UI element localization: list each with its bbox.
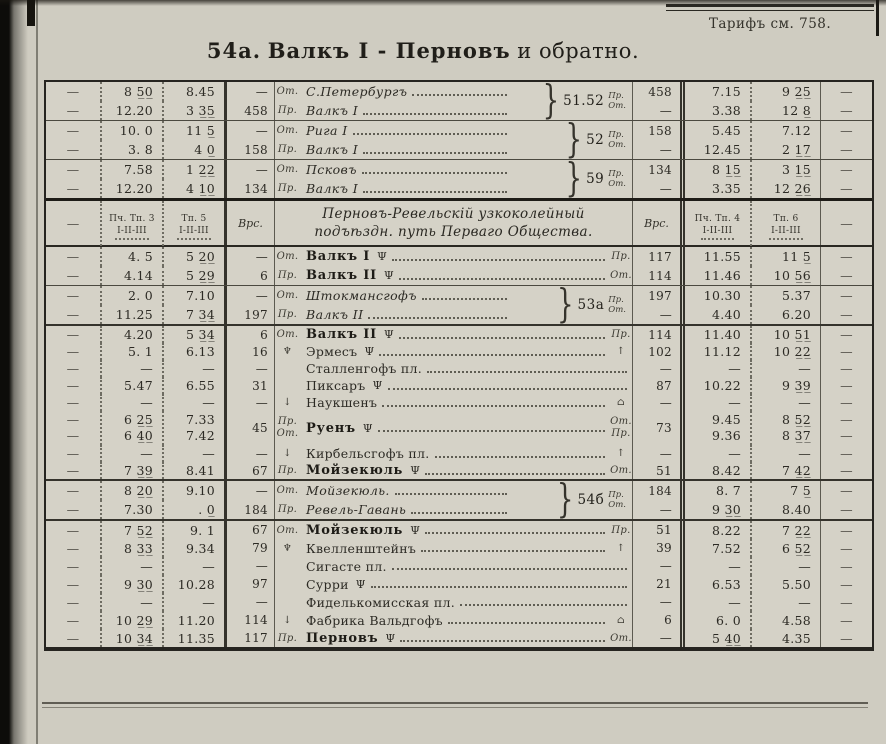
time-cell: 9. 1 [162, 521, 224, 539]
timetable-row: —4.145 2̲9̲6Пр.Валкъ IIΨОт.11411.4610 5̲… [46, 266, 872, 285]
timetable-row: ————Фиделькомисская пл.———— [46, 593, 872, 611]
time-cell: 12.20 [100, 101, 162, 120]
right-ink-mark [876, 0, 879, 36]
dash-cell: — [820, 611, 872, 629]
route-number-label: 54а. [207, 38, 261, 63]
buffet-icon: Ψ [385, 632, 395, 645]
direction-cell: ♆ [274, 539, 300, 557]
timetable-row: —2. 07.10—От.Штокмансгофъ19710.305.37— [46, 286, 872, 305]
verst-cell: — [632, 394, 680, 411]
verst-cell: — [224, 593, 274, 611]
timetable: —8 5̲0̲8.45—От.С.Петербургъ4587.159 2̲5̲… [44, 80, 874, 651]
row-group: —7 5̲2̲9. 167От.МойзекюльΨПр.518.227 2̲2… [46, 521, 872, 647]
verst-cell: 51 [632, 462, 680, 479]
verst-cell: 197 [224, 305, 274, 324]
station-cell: Сигасте пл. [300, 557, 632, 575]
time-cell: 11.55 [680, 247, 750, 266]
dash-cell: — [46, 481, 100, 500]
verst-cell: 158 [224, 140, 274, 159]
dash-cell: — [820, 266, 872, 285]
dash-cell: — [820, 121, 872, 140]
dotted-leader [399, 337, 605, 339]
dotted-leader [435, 456, 605, 458]
brace-glyph: } [566, 121, 583, 160]
dotted-leader [460, 604, 627, 606]
verst-cell: 458 [224, 101, 274, 120]
time-cell: 10. 0 [100, 121, 162, 140]
header-train-right-2: Тп. 6 І-ІІ-ІІІ [750, 201, 820, 249]
time-cell: 4.40 [680, 305, 750, 324]
direction-cell [274, 575, 300, 593]
dotted-leader [379, 354, 605, 356]
dash-cell: — [46, 305, 100, 324]
row-group: —2. 07.10—От.Штокмансгофъ19710.305.37——1… [46, 285, 872, 324]
time-cell: 11 5̲ [750, 247, 820, 266]
time-cell: 5 2̲9̲ [162, 266, 224, 285]
time-cell: 5.37 [750, 286, 820, 305]
time-cell: 10.30 [680, 286, 750, 305]
time-cell: 8. 7 [680, 481, 750, 500]
section-moiseküll-to-pernov: —7 5̲2̲9. 167От.МойзекюльΨПр.518.227 2̲2… [46, 519, 872, 647]
row-group: —8 2̲0̲9.10—От.Мойзекюль.1848. 77 5̲——7.… [46, 481, 872, 519]
direction-cell: Пр. [274, 101, 300, 120]
route-ref-directions: Пр.От. [608, 295, 626, 315]
route-ref-directions: Пр.От. [608, 490, 626, 510]
station-cell: СурриΨ [300, 575, 632, 593]
time-cell: 8.45 [162, 82, 224, 101]
dash-cell: — [46, 140, 100, 159]
row-group: —4.205 3̲4̲6От.Валкъ IIΨПр.11411.4010 5̲… [46, 326, 872, 479]
header-train-left-1: Пч. Тп. 3 І-ІІ-ІІІ [100, 201, 162, 249]
dash-cell: — [46, 445, 100, 462]
class-label: І-ІІ-ІІІ [769, 226, 803, 241]
dotted-leader [353, 133, 507, 135]
route-ref-directions: Пр.От. [608, 91, 626, 111]
section-connections-top: —8 5̲0̲8.45—От.С.Петербургъ4587.159 2̲5̲… [46, 82, 872, 198]
verst-cell: 184 [632, 481, 680, 500]
end-symbol: ↑ [610, 445, 632, 462]
dash-cell: — [820, 593, 872, 611]
dotted-leader [400, 640, 605, 642]
train-label: Тп. 5 [182, 214, 207, 226]
station-cell: Наукшенъ⌂ [300, 394, 632, 411]
time-cell: 7 3̲9̲ [100, 462, 162, 479]
verst-cell: — [632, 179, 680, 198]
direction-cell [274, 557, 300, 575]
verst-cell: 31 [224, 377, 274, 394]
buffet-icon: Ψ [410, 524, 420, 537]
time-cell: — [162, 593, 224, 611]
timetable-row: —10. 011 5̲—От.Рига I1585.457.12— [46, 121, 872, 140]
dash-cell: — [820, 481, 872, 500]
dash-cell: — [820, 377, 872, 394]
station-cell: МойзекюльΨПр. [300, 521, 632, 539]
dash-cell: — [820, 326, 872, 343]
verst-cell: — [224, 82, 274, 101]
verst-cell: — [632, 360, 680, 377]
verst-cell: 73 [632, 411, 680, 445]
end-symbol: ↑ [610, 539, 632, 557]
line-title-2: подъѣздн. путь Перваго Общества. [314, 223, 592, 241]
time-cell: — [680, 360, 750, 377]
timetable-row: —12.204 1̲0̲134Пр.Валкъ I—3.3512 2̲6̲— [46, 179, 872, 198]
verst-cell: 134 [224, 179, 274, 198]
dotted-leader [362, 172, 507, 174]
time-cell: 3. 8 [100, 140, 162, 159]
dotted-leader [371, 586, 627, 588]
dotted-leader [422, 298, 507, 300]
verst-cell: 97 [224, 575, 274, 593]
verst-cell: — [632, 500, 680, 519]
dotted-leader [388, 388, 627, 390]
dotted-leader [425, 473, 605, 475]
time-cell: 6.13 [162, 343, 224, 360]
row-group: —8 5̲0̲8.45—От.С.Петербургъ4587.159 2̲5̲… [46, 82, 872, 120]
time-cell: — [750, 557, 820, 575]
dotted-leader [382, 405, 605, 407]
dash-cell: — [46, 266, 100, 285]
station-name: Сурри [306, 577, 349, 592]
dash-cell: — [820, 394, 872, 411]
timetable-row: —11.257 3̲4̲197Пр.Валкъ II—4.406.20— [46, 305, 872, 324]
direction-cell: ♆ [274, 343, 300, 360]
direction-cell: От. [274, 286, 300, 305]
dash-cell: — [820, 160, 872, 179]
brace-glyph: } [566, 160, 583, 199]
route-ref-directions: Пр.От. [608, 130, 626, 150]
station-cell: Квелленштейнъ↑ [300, 539, 632, 557]
time-cell: 12 8̲ [750, 101, 820, 120]
station-name: Кирбельсгофъ пл. [306, 446, 430, 461]
time-cell: 8.41 [162, 462, 224, 479]
time-cell: 12.20 [100, 179, 162, 198]
verst-cell: — [224, 160, 274, 179]
time-cell: 9 2̲5̲ [750, 82, 820, 101]
timetable-row: —8 2̲0̲9.10—От.Мойзекюль.1848. 77 5̲— [46, 481, 872, 500]
time-cell: 6.55 [162, 377, 224, 394]
time-cell: 10 5̲6̲ [750, 266, 820, 285]
time-cell: — [100, 593, 162, 611]
verst-cell: — [224, 247, 274, 266]
time-cell: 7.10 [162, 286, 224, 305]
timetable-row: ————↓Наукшенъ⌂———— [46, 394, 872, 411]
dash-cell: — [820, 82, 872, 101]
dash-cell: — [46, 539, 100, 557]
verst-cell: — [224, 286, 274, 305]
dash-cell: — [820, 360, 872, 377]
time-cell: 11.46 [680, 266, 750, 285]
timetable-row: —8 5̲0̲8.45—От.С.Петербургъ4587.159 2̲5̲… [46, 82, 872, 101]
dash-cell: — [46, 179, 100, 198]
time-cell: 3.35 [680, 179, 750, 198]
direction-cell: Пр.От. [274, 411, 300, 445]
timetable-row: —7 5̲2̲9. 167От.МойзекюльΨПр.518.227 2̲2… [46, 521, 872, 539]
direction-cell: От. [274, 82, 300, 101]
dash-cell: — [820, 140, 872, 159]
verst-cell: 16 [224, 343, 274, 360]
train-label: Пч. Тп. 3 [109, 214, 155, 226]
verst-cell: — [224, 360, 274, 377]
station-name: Эрмесъ [306, 344, 357, 359]
time-cell: — [750, 593, 820, 611]
header-versts-right: Врс. [632, 201, 680, 245]
verst-cell: 134 [632, 160, 680, 179]
direction-cell [274, 593, 300, 611]
timetable-row: —9 3̲0̲10.2897СурриΨ216.535.50— [46, 575, 872, 593]
station-name: Пиксаръ [306, 378, 366, 393]
station-name: Сталленгофъ пл. [306, 361, 422, 376]
dash-cell: — [46, 462, 100, 479]
direction-cell: От. [274, 121, 300, 140]
time-cell: 4.20 [100, 326, 162, 343]
direction-cell: Пр. [274, 140, 300, 159]
time-cell: — [680, 445, 750, 462]
time-cell: 8 1̲5̲ [680, 160, 750, 179]
timetable-row: ————Сталленгофъ пл.———— [46, 360, 872, 377]
time-cell: 8.22 [680, 521, 750, 539]
dotted-leader [363, 113, 507, 115]
station-name: Ревель-Гавань [306, 502, 406, 517]
dotted-leader [399, 278, 605, 280]
dash-cell: — [46, 360, 100, 377]
time-cell: 10 2̲2̲ [750, 343, 820, 360]
time-cell: 4.58 [750, 611, 820, 629]
station-name: Штокмансгофъ [306, 288, 417, 303]
dash-cell: — [46, 521, 100, 539]
station-name: Фабрика Вальдгофъ [306, 613, 443, 628]
brace-glyph: } [543, 82, 560, 121]
station-cell: РуенъΨОт.Пр. [300, 411, 632, 445]
time-cell: 7.58 [100, 160, 162, 179]
time-cell: 4. 5 [100, 247, 162, 266]
route-title-suffix: и обратно. [517, 39, 639, 63]
scanned-page: Тарифъ см. 758. 54а. Валкъ I - Перновъ и… [0, 0, 886, 744]
dotted-leader [392, 568, 627, 570]
time-cell: 11.40 [680, 326, 750, 343]
time-cell: 4.35 [750, 629, 820, 647]
time-cell: 8 5̲0̲ [100, 82, 162, 101]
time-cell: — [680, 593, 750, 611]
station-name: Фиделькомисская пл. [306, 595, 455, 610]
time-cell: 7.12 [750, 121, 820, 140]
time-cell: — [750, 394, 820, 411]
verst-cell: 6 [224, 266, 274, 285]
direction-cell: От. [274, 247, 300, 266]
time-cell: 11.12 [680, 343, 750, 360]
route-reference: }53аПр.От. [557, 286, 626, 324]
timetable-row: —10 2̲9̲11.20114↓Фабрика Вальдгофъ⌂66. 0… [46, 611, 872, 629]
row-group: —10. 011 5̲—От.Рига I1585.457.12——3. 84 … [46, 120, 872, 159]
time-cell: — [100, 360, 162, 377]
verst-cell: — [632, 557, 680, 575]
time-cell: 6 5̲2̲ [750, 539, 820, 557]
dash-cell: — [820, 179, 872, 198]
time-cell: — [750, 445, 820, 462]
direction-cell: ↓ [274, 394, 300, 411]
time-cell: 6.53 [680, 575, 750, 593]
train-label: Тп. 6 [774, 214, 799, 226]
brace-glyph: } [557, 286, 574, 325]
time-cell: 4 0̲ [162, 140, 224, 159]
direction-cell: Пр. [274, 462, 300, 479]
direction-cell: От. [274, 521, 300, 539]
verst-cell: 67 [224, 521, 274, 539]
station-name: Рига I [306, 123, 348, 138]
direction-cell: ↓ [274, 445, 300, 462]
dash-cell: — [820, 557, 872, 575]
time-cell: — [162, 557, 224, 575]
time-cell: — [680, 557, 750, 575]
verst-cell: 114 [632, 326, 680, 343]
direction-cell: От. [274, 326, 300, 343]
direction-cell: От. [274, 481, 300, 500]
time-cell: 4 1̲0̲ [162, 179, 224, 198]
dotted-leader [448, 622, 605, 624]
verst-cell: — [224, 445, 274, 462]
station-name: Валкъ II [306, 307, 363, 322]
station-name: Валкъ II [306, 327, 377, 342]
time-cell: 8 5̲2̲8 3̲7̲ [750, 411, 820, 445]
route-reference: }54бПр.От. [557, 481, 626, 519]
time-cell: — [750, 360, 820, 377]
verst-cell: — [224, 121, 274, 140]
station-name: Мойзекюль. [306, 483, 390, 498]
station-cell: Валкъ IIΨПр. [300, 326, 632, 343]
timetable-row: ————↓Кирбельсгофъ пл.↑———— [46, 445, 872, 462]
time-cell: 5.45 [680, 121, 750, 140]
verst-cell: 458 [632, 82, 680, 101]
time-cell: 11 5̲ [162, 121, 224, 140]
direction-cell: Пр. [274, 629, 300, 647]
end-symbol: ⌂ [610, 394, 632, 411]
time-cell: 1 2̲2̲ [162, 160, 224, 179]
header-versts-left: Врс. [224, 201, 274, 245]
time-cell: — [100, 394, 162, 411]
station-cell: Сталленгофъ пл. [300, 360, 632, 377]
verst-cell: 102 [632, 343, 680, 360]
verst-cell: 158 [632, 121, 680, 140]
time-cell: 3 1̲5̲ [750, 160, 820, 179]
table-header-band: — Пч. Тп. 3 І-ІІ-ІІІ Тп. 5 І-ІІ-ІІІ Врс.… [46, 198, 872, 247]
time-cell: 10 2̲9̲ [100, 611, 162, 629]
time-cell: 7 4̲2̲ [750, 462, 820, 479]
dash-cell: — [820, 539, 872, 557]
end-symbol: ↑ [610, 343, 632, 360]
route-ref-number: 53а [578, 297, 605, 313]
train-label: Пч. Тп. 4 [695, 214, 741, 226]
dash-cell: — [46, 593, 100, 611]
verst-cell: 114 [224, 611, 274, 629]
dotted-leader [395, 493, 507, 495]
dash-cell: — [46, 629, 100, 647]
dotted-leader [363, 191, 507, 193]
time-cell: — [162, 445, 224, 462]
bottom-double-rule [42, 702, 868, 708]
direction-cell [274, 360, 300, 377]
verst-cell: 6 [632, 611, 680, 629]
time-cell: 7 2̲2̲ [750, 521, 820, 539]
time-cell: 9.459.36 [680, 411, 750, 445]
verst-cell: 6 [224, 326, 274, 343]
dash-cell: — [46, 286, 100, 305]
dash-cell: — [820, 629, 872, 647]
time-cell: 5.47 [100, 377, 162, 394]
section-valk-local: —4. 55 2̲0̲—От.Валкъ IΨПр.11711.5511 5̲—… [46, 247, 872, 324]
section-valk-to-moiseküll: —4.205 3̲4̲6От.Валкъ IIΨПр.11411.4010 5̲… [46, 324, 872, 479]
end-symbol: ⌂ [610, 611, 632, 629]
dash-cell: — [820, 500, 872, 519]
verst-cell: 184 [224, 500, 274, 519]
dotted-leader [363, 152, 507, 154]
time-cell: 10.22 [680, 377, 750, 394]
verst-cell: 45 [224, 411, 274, 445]
station-name: Валкъ II [306, 268, 377, 283]
time-cell: 7 5̲ [750, 481, 820, 500]
end-symbol: Пр. [610, 326, 632, 343]
buffet-icon: Ψ [356, 578, 366, 591]
time-cell: 3.38 [680, 101, 750, 120]
station-name: Руенъ [306, 421, 356, 436]
station-cell: Фабрика Вальдгофъ⌂ [300, 611, 632, 629]
station-cell: Валкъ IIΨОт. [300, 266, 632, 285]
time-cell: 7 3̲4̲ [162, 305, 224, 324]
timetable-row: —7.30. 0̲184Пр.Ревель-Гавань—9 3̲0̲8.40— [46, 500, 872, 519]
dash-cell: — [46, 82, 100, 101]
time-cell: 11.25 [100, 305, 162, 324]
time-cell: 6 2̲5̲6 4̲0̲ [100, 411, 162, 445]
row-group: —7.581 2̲2̲—От.Псковъ1348 1̲5̲3 1̲5̲——12… [46, 159, 872, 198]
station-name: Валкъ I [306, 249, 370, 264]
buffet-icon: Ψ [373, 379, 383, 392]
route-ref-number: 52 [586, 132, 604, 148]
time-cell: 5 3̲4̲ [162, 326, 224, 343]
verst-cell: — [632, 629, 680, 647]
time-cell: 2. 0 [100, 286, 162, 305]
row-group: —4. 55 2̲0̲—От.Валкъ IΨПр.11711.5511 5̲—… [46, 247, 872, 285]
station-name: Валкъ I [306, 142, 358, 157]
dotted-leader [425, 532, 605, 534]
time-cell: — [100, 445, 162, 462]
timetable-row: —5.476.5531ПиксаръΨ8710.229 3̲9̲— [46, 377, 872, 394]
dash-cell: — [46, 247, 100, 266]
dotted-leader [392, 259, 605, 261]
station-cell: МойзекюльΨОт. [300, 462, 632, 479]
time-cell: 5. 1 [100, 343, 162, 360]
timetable-row: —7.581 2̲2̲—От.Псковъ1348 1̲5̲3 1̲5̲— [46, 160, 872, 179]
buffet-icon: Ψ [384, 328, 394, 341]
time-cell: 10.28 [162, 575, 224, 593]
dash-cell: — [46, 611, 100, 629]
time-cell: 7.30 [100, 500, 162, 519]
header-dash: — [46, 201, 100, 245]
time-cell: 9 3̲9̲ [750, 377, 820, 394]
buffet-icon: Ψ [377, 250, 387, 263]
route-ref-directions: Пр.От. [608, 169, 626, 189]
route-ref-number: 51.52 [563, 93, 604, 109]
timetable-row: —4. 55 2̲0̲—От.Валкъ IΨПр.11711.5511 5̲— [46, 247, 872, 266]
verst-cell: 117 [632, 247, 680, 266]
time-cell: 9 3̲0̲ [100, 575, 162, 593]
dash-cell: — [46, 575, 100, 593]
station-name: Валкъ I [306, 181, 358, 196]
verst-cell: — [632, 140, 680, 159]
end-symbol: Пр. [610, 521, 632, 539]
timetable-row: ————Сигасте пл.———— [46, 557, 872, 575]
direction-cell: От. [274, 160, 300, 179]
double-rule [666, 4, 874, 11]
dash-cell: — [46, 557, 100, 575]
time-cell: 8.40 [750, 500, 820, 519]
